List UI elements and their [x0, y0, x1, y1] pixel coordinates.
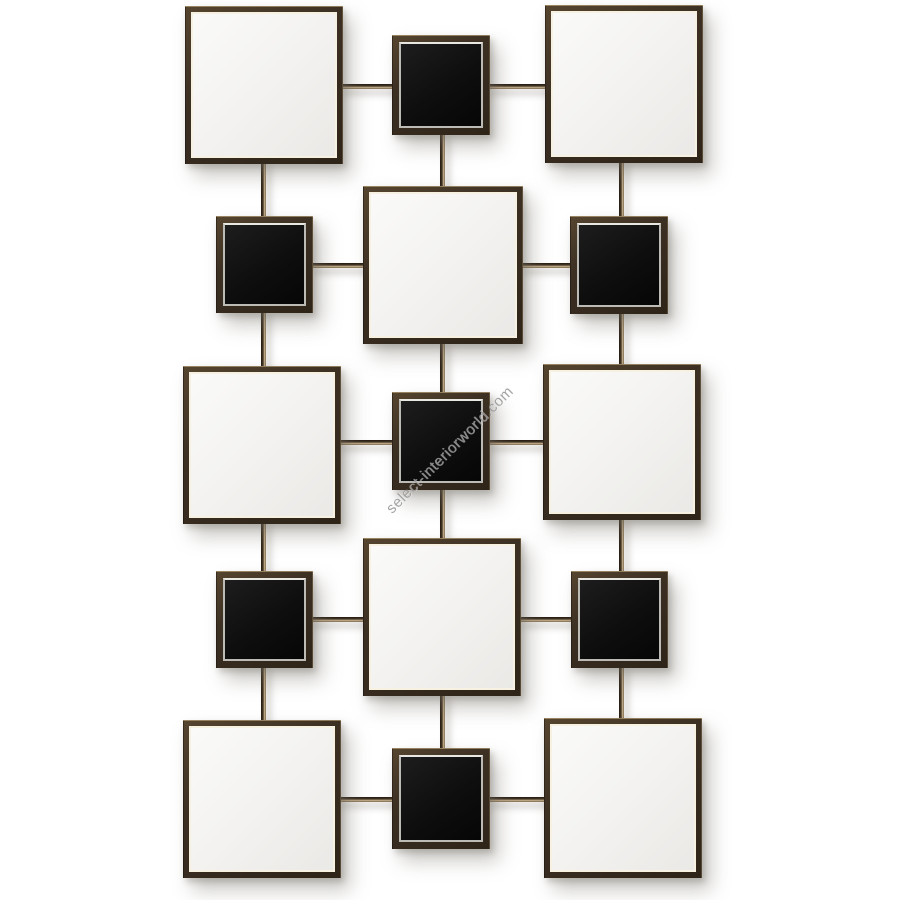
connector-rod-vertical	[440, 487, 445, 541]
black-glass	[399, 42, 483, 128]
black-glass	[577, 223, 661, 307]
black-glass	[578, 578, 661, 661]
black-glass	[223, 223, 306, 306]
connector-rod-horizontal	[520, 263, 573, 268]
mirror-glass	[189, 372, 335, 518]
mirror-glass	[551, 11, 697, 157]
black-glass-square	[216, 571, 313, 668]
mirror-glass	[191, 12, 337, 158]
mirror-glass	[550, 724, 696, 872]
mirror-glass	[369, 544, 515, 690]
connector-rod-horizontal	[487, 84, 548, 89]
mirror-glass	[549, 370, 695, 514]
black-glass-square	[570, 216, 668, 314]
connector-rod-vertical	[440, 693, 445, 751]
connector-rod-vertical	[261, 310, 266, 369]
black-glass	[223, 578, 306, 661]
mirror-glass	[369, 192, 517, 338]
connector-rod-vertical	[619, 517, 624, 574]
mirror-square	[363, 186, 523, 344]
connector-rod-vertical	[440, 341, 445, 395]
mirror-square	[544, 718, 702, 878]
connector-rod-horizontal	[487, 797, 547, 802]
black-glass-square	[392, 392, 490, 490]
mirror-square	[543, 364, 701, 520]
connector-rod-horizontal	[520, 617, 574, 622]
connector-rod-vertical	[261, 521, 266, 574]
connector-rod-horizontal	[310, 617, 366, 622]
connector-rod-horizontal	[310, 263, 366, 268]
mirror-square	[363, 538, 521, 696]
connector-rod-horizontal	[487, 440, 546, 445]
connector-rod-vertical	[440, 132, 445, 189]
connector-rod-horizontal	[338, 440, 395, 445]
connector-rod-horizontal	[338, 797, 395, 802]
black-glass-square	[216, 216, 313, 313]
black-glass-square	[392, 748, 490, 849]
black-glass	[399, 755, 483, 842]
connector-rod-vertical	[261, 665, 266, 723]
mirror-glass	[189, 726, 335, 872]
mirror-square	[185, 6, 343, 164]
connector-rod-vertical	[619, 665, 624, 721]
connector-rod-vertical	[261, 161, 266, 219]
black-glass-square	[571, 571, 668, 668]
mirror-square	[183, 720, 341, 878]
connector-rod-vertical	[619, 160, 624, 219]
mirror-square	[545, 5, 703, 163]
product-photo-wall-mirror: select-interiorworld.com	[0, 0, 900, 900]
black-glass-square	[392, 35, 490, 135]
connector-rod-horizontal	[340, 84, 395, 89]
mirror-square	[183, 366, 341, 524]
connector-rod-vertical	[619, 311, 624, 367]
